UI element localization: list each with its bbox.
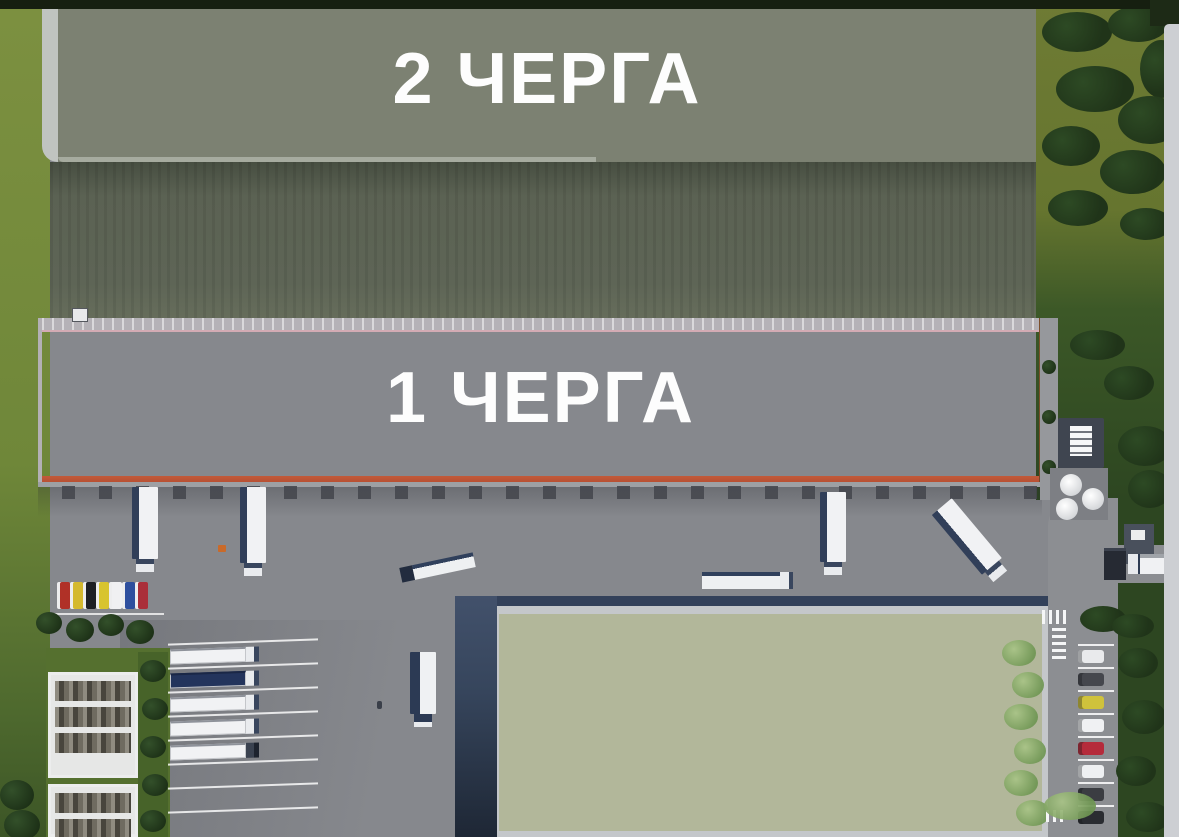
docked-truck [240,487,266,576]
truck-trailer [702,572,780,589]
car [86,582,96,609]
parked-truck [170,646,259,664]
truck-cab [246,670,259,685]
rack-row [55,707,131,727]
storage-rack [48,784,138,837]
car [1078,673,1104,686]
rack-row [55,819,131,837]
bush [140,810,166,832]
top-treeline [0,0,1179,9]
truck-cab [780,572,793,589]
car [112,582,122,609]
image-border [1164,24,1179,837]
dock-structure [72,308,88,322]
truck-parking-slot [168,806,318,835]
guard-office-building [1058,418,1104,468]
west-wall [455,596,497,837]
truck-cab [136,559,154,572]
corner-trees [1150,0,1179,26]
bush [1042,360,1056,374]
tree [1014,738,1046,764]
parking-bay [1078,690,1114,713]
truck-trailer [132,487,158,559]
yard-truck [410,652,436,727]
rack-row [55,793,131,813]
truck-cab [246,718,259,733]
rack-row [55,681,131,701]
yard-truck [399,552,475,582]
bush [0,780,34,810]
umbrella [1060,474,1082,496]
truck-trailer [410,652,436,714]
future-construction-field [50,162,1036,318]
tree [1070,330,1125,360]
phase1-label: 1 ЧЕРГА [386,362,695,446]
aerial-site-render: 2 ЧЕРГА 1 ЧЕРГА [0,0,1179,837]
truck-cab [1128,554,1140,574]
truck-cab [246,742,259,757]
car [1078,765,1104,778]
phase2-warehouse-building: 2 ЧЕРГА [42,8,1036,162]
tree [1116,756,1156,786]
parking-bay [1078,713,1114,736]
tree [1104,366,1154,400]
truck-trailer [170,646,246,664]
car [1078,719,1104,732]
tree [1118,648,1158,678]
umbrella [1082,488,1104,510]
truck-cab [246,646,259,661]
truck-trailer [412,552,476,580]
tree [1100,150,1166,194]
bush [98,614,124,636]
storage-rack [48,672,138,778]
bush [66,618,94,642]
yard-truck [702,572,793,589]
parking-bay [1078,759,1114,782]
docked-truck [820,492,846,575]
truck-trailer [170,670,246,688]
phase2-label: 2 ЧЕРГА [393,43,702,127]
umbrella [1056,498,1078,520]
car [60,582,70,609]
loading-dock-canopies [62,486,1040,499]
person [377,701,382,709]
phase1-roof: 1 ЧЕРГА [42,332,1039,476]
skylight [1070,426,1092,456]
bush [142,774,168,796]
truck-trailer [820,492,846,562]
rack-row [55,733,131,753]
crosswalk [1052,628,1066,662]
tree [1112,614,1154,638]
tree [1002,640,1036,666]
bush [36,612,62,634]
bush [140,660,166,682]
parked-truck [170,742,259,760]
parking-bay [1078,736,1114,759]
phase1-warehouse-building: 1 ЧЕРГА [38,318,1042,487]
tree [1012,672,1044,698]
car [125,582,135,609]
car [73,582,83,609]
foreground-warehouse-building [455,596,1048,837]
truck-trailer [170,742,246,760]
bush [142,698,168,720]
bush [126,620,154,644]
truck-trailer [240,487,266,563]
foreground-roof [499,614,1042,831]
tree [1122,700,1166,734]
tree [1004,704,1038,730]
bush [140,736,166,758]
tree [1042,126,1100,166]
truck-cab [246,694,259,709]
tree [1044,792,1096,820]
parked-truck [170,718,259,736]
visitor-parking-row [60,582,160,610]
truck-trailer [170,694,246,712]
docked-truck [132,487,158,572]
car [138,582,148,609]
tree [1004,770,1038,796]
crosswalk [1042,610,1068,624]
car [1078,696,1104,709]
car [99,582,109,609]
forklift [218,545,226,552]
entering-box-truck [1104,548,1126,580]
truck-cab [244,563,262,576]
truck-cab [824,562,842,575]
bush [1042,410,1056,424]
car [1078,742,1104,755]
truck-cab [414,714,432,727]
parked-truck [170,694,259,712]
tree [1056,66,1134,112]
parked-truck [170,670,259,688]
truck-trailer [170,718,246,736]
bush [4,810,40,837]
truck-parking-area [168,638,318,837]
parking-bay [1078,667,1114,690]
tree [1048,190,1108,226]
phase1-north-parapet [42,318,1039,332]
car [1078,650,1104,663]
tree [1042,12,1112,52]
parking-bay [1078,644,1114,667]
